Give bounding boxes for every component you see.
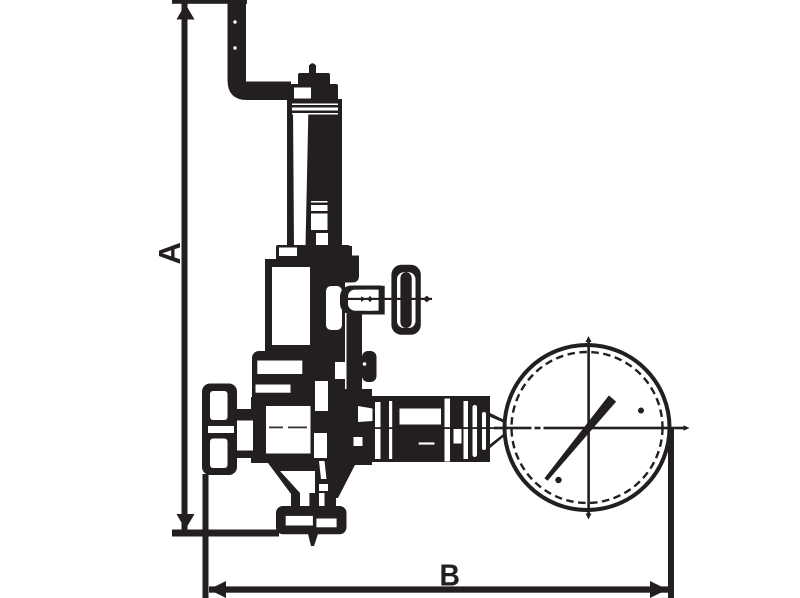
svg-text:B: B: [439, 558, 460, 593]
svg-text:A: A: [152, 242, 187, 264]
